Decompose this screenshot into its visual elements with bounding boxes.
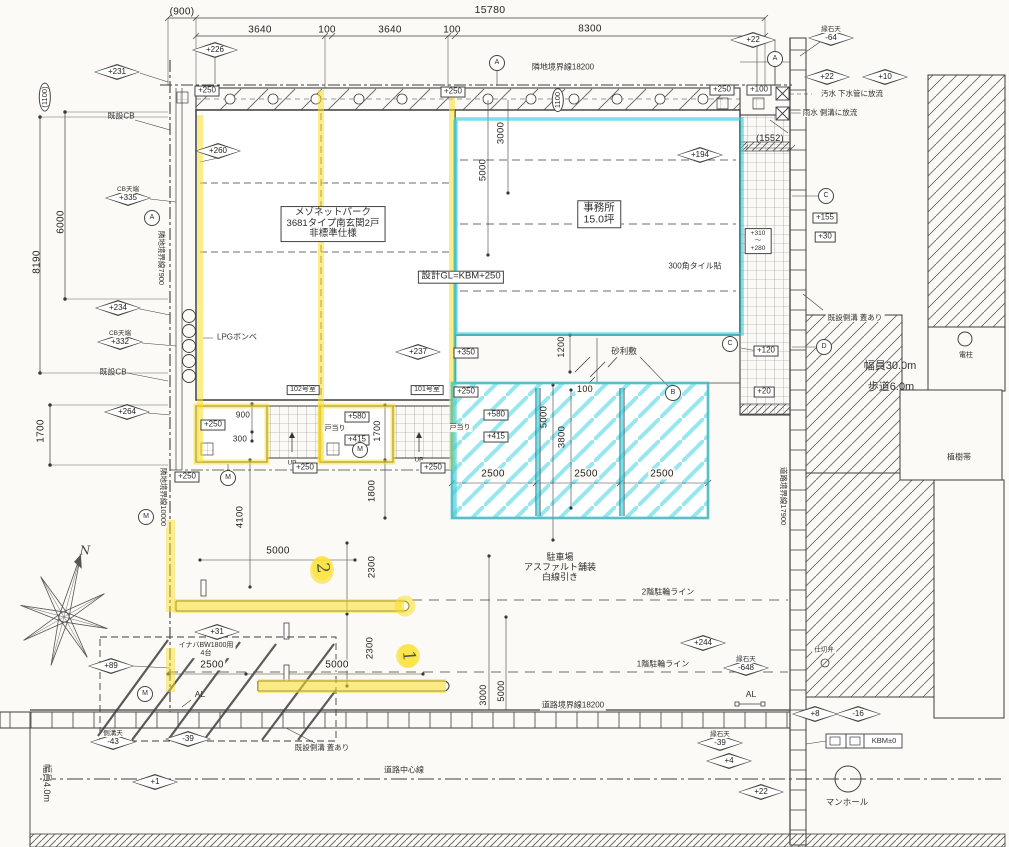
note-2: 2 <box>312 556 333 580</box>
dim-2500-b: 2500 <box>572 468 599 479</box>
dim-5000-drive-b: 5000 <box>323 659 350 670</box>
lv-310-280: +310〜+280 <box>745 228 772 254</box>
dim-2500-a: 2500 <box>479 468 506 479</box>
spot-89: +89 <box>88 658 134 674</box>
dim-1700-entry: 1700 <box>372 420 382 441</box>
dim-3640-a: 3640 <box>248 24 271 35</box>
dim-5000-top: 5000 <box>479 159 490 181</box>
al-right: AL <box>744 690 758 700</box>
lv-250-walk-3: +250 <box>709 85 734 96</box>
dim-900-porch: 900 <box>236 412 250 421</box>
grid-c-1: C <box>722 336 738 352</box>
dim-4100: 4100 <box>236 506 247 528</box>
cb-bottom: 既設CB <box>99 369 126 378</box>
spot-22-b: +22 <box>804 69 850 85</box>
rain-note: 雨水 側溝に放流 <box>801 109 860 117</box>
meter-porch-m: M <box>352 442 368 458</box>
dim-5000-drive-a: 5000 <box>264 545 291 556</box>
spot-231: +231 <box>94 64 140 80</box>
lv-250-porch-l: +250 <box>200 420 225 431</box>
gutter-right: 既設側溝 蓋あり <box>826 314 885 322</box>
lv-250-walk-2: +250 <box>440 87 465 98</box>
dim-1800: 1800 <box>368 480 379 502</box>
spot-264: +264 <box>104 404 150 420</box>
note-1: 1 <box>398 644 419 668</box>
spot-22-a: +22 <box>738 784 784 800</box>
lv-250-102: +250 <box>292 463 317 474</box>
dim-100-b: 100 <box>443 24 461 35</box>
meter-left-2: M <box>137 686 153 702</box>
gutter-bottom: 既設側溝 蓋あり <box>293 744 352 752</box>
dim-2500-shed: 2500 <box>198 659 225 670</box>
boundary-bottom: 道路境界線18200 <box>540 702 606 711</box>
dim-6000: 6000 <box>55 210 66 233</box>
spot-234: +234 <box>95 300 141 316</box>
doorstop-102: 戸当り <box>323 425 348 433</box>
dim-1100-walk: 1100 <box>552 88 564 112</box>
doorstop-101: 戸当り <box>448 424 473 432</box>
lv-120: +120 <box>753 346 778 357</box>
dim-8300: 8300 <box>578 23 601 34</box>
planting-label: 植樹帯 <box>947 454 971 463</box>
gravel-note: 砂利敷 <box>609 347 639 357</box>
dim-1700-left: 1700 <box>35 419 46 442</box>
lv-350: +350 <box>453 348 478 359</box>
pole-label: 電柱 <box>959 352 973 360</box>
dim-5000-exit: 5000 <box>496 680 506 701</box>
spot-31: +31 <box>194 624 240 640</box>
dim-3000-exit: 3000 <box>478 684 488 705</box>
line-1f: 1階駐輪ライン <box>635 661 691 670</box>
spot-22-c: +22 <box>730 32 776 48</box>
line-2f: 2階駐輪ライン <box>640 589 696 598</box>
room-101: 101号室 <box>411 385 444 395</box>
manhole-label: マンホール <box>826 798 869 808</box>
road-width-bottom: 幅員4.0m <box>42 762 52 804</box>
parking-label: 駐車場アスファルト舗装白線引き <box>524 552 596 582</box>
grid-a-right: A <box>767 51 783 67</box>
dim-900: (900) <box>170 6 195 17</box>
grid-a-left: A <box>144 210 160 226</box>
lv-415-101: +415 <box>483 432 508 443</box>
lv-250-porch-l2: +250 <box>174 472 199 483</box>
tile-note: 300角タイル貼 <box>668 263 721 272</box>
grid-c-2: C <box>818 188 834 204</box>
meter-porch-l: M <box>220 470 236 486</box>
sewage-note: 汚水 下水管に放流 <box>819 90 885 98</box>
dim-5000-park: 5000 <box>540 406 551 428</box>
dim-3000-top: 3000 <box>497 122 508 144</box>
spot-39-a: -39 <box>165 731 211 747</box>
dim-300-porch: 300 <box>233 436 247 445</box>
dim-2300-a: 2300 <box>368 556 379 578</box>
lpg-label: LPGボンベ <box>217 334 257 343</box>
spot-332: +332CB天端 <box>97 334 143 350</box>
dim-1100-left: (1100) <box>39 82 51 111</box>
site-plan-page: (900)15780364010036401008300(1100)600081… <box>0 0 1009 847</box>
building-title: メゾネットパーク3681タイプ南玄関2戸非標準仕様 <box>281 206 386 242</box>
road-centerline-label: 道路中心線 <box>382 767 426 776</box>
lv-20: +20 <box>754 387 775 398</box>
valve-label: 仕切弁 <box>812 646 836 653</box>
boundary-right: 道路境界線17900 <box>779 465 787 527</box>
kbm-label: KBM±0 <box>872 737 897 745</box>
shed-label: イナバBW1800用4台 <box>177 642 236 658</box>
dim-2500-c: 2500 <box>648 468 675 479</box>
spot-226: +226 <box>192 42 238 58</box>
design-gl: 設計GL=KBM+250 <box>418 271 504 284</box>
lv-30: +30 <box>815 232 836 243</box>
spot-237: +237 <box>395 344 441 360</box>
spot-8: +8 <box>792 706 838 722</box>
lv-100: +100 <box>746 85 771 96</box>
lv-250-101: +250 <box>420 463 445 474</box>
boundary-left-lower: 隣地境界線10000 <box>159 466 167 528</box>
dim-8190: 8190 <box>31 250 42 273</box>
grid-d: D <box>816 339 832 355</box>
spot-39-b: -39縁石天 <box>697 735 743 751</box>
sidewalk-width: 歩道6.0m <box>868 381 914 393</box>
spot-10: +10 <box>862 69 908 85</box>
spot-1: +1 <box>132 774 178 790</box>
office-label: 事務所15.0坪 <box>577 200 621 228</box>
dim-2300-b: 2300 <box>366 637 377 659</box>
north-label: N <box>80 544 91 557</box>
dim-1552: (1552) <box>756 133 784 143</box>
spot-244: +244 <box>680 635 726 651</box>
dim-3640-b: 3640 <box>378 24 401 35</box>
dim-1200: 1200 <box>556 336 566 357</box>
dim-100-a: 100 <box>318 24 336 35</box>
spot-260: +260 <box>195 143 241 159</box>
lv-580-102: +580 <box>344 412 369 423</box>
lv-250-park: +250 <box>453 387 478 398</box>
lv-155: +155 <box>812 213 837 224</box>
lv-250-walk-1: +250 <box>194 86 219 97</box>
boundary-left-upper: 隣地境界線7900 <box>157 229 165 287</box>
spot-4: +4 <box>706 753 752 769</box>
cb-top: 既設CB <box>107 113 134 122</box>
spot-64: -64縁石天 <box>808 30 854 46</box>
spot-335: +335CB天端 <box>105 190 151 206</box>
boundary-top: 隣地境界線18200 <box>530 64 596 73</box>
annotation-layer: (900)15780364010036401008300(1100)600081… <box>0 0 1009 847</box>
room-102: 102号室 <box>287 385 320 395</box>
spot-43: -43側溝天 <box>90 734 136 750</box>
meter-left-1: M <box>138 509 154 525</box>
road-width-right: 幅員30.0m <box>864 360 917 372</box>
grid-b: B <box>665 385 681 401</box>
dim-3800: 3800 <box>558 426 569 448</box>
dim-15780: 15780 <box>475 5 506 17</box>
al-left: AL <box>195 690 205 700</box>
dim-100-gravel: 100 <box>575 384 595 394</box>
lv-580-101: +580 <box>483 410 508 421</box>
spot-648: -648縁石天 <box>723 660 769 676</box>
spot-16: -16 <box>835 706 881 722</box>
spot-194: +194 <box>677 147 723 163</box>
grid-a-top: A <box>489 55 505 71</box>
